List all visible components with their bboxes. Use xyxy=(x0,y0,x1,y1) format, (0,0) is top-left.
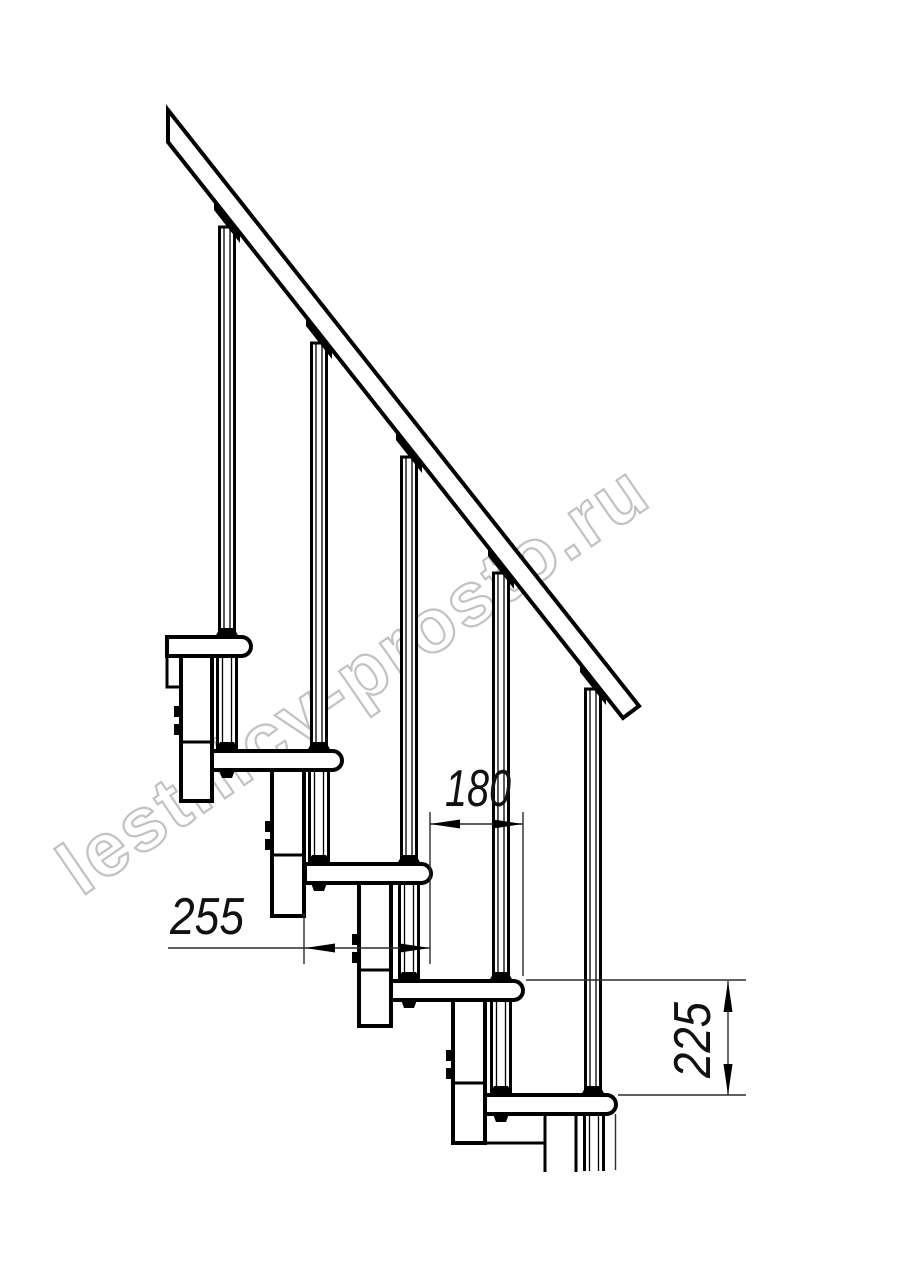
baluster-3 xyxy=(397,457,421,864)
bolt xyxy=(446,1050,454,1061)
nut xyxy=(311,883,327,891)
tread-5 xyxy=(485,1095,616,1114)
tread-4 xyxy=(391,981,523,1000)
sleeve-5 xyxy=(585,1114,604,1171)
arrowhead-left xyxy=(430,820,460,829)
dimension-step-rise: 225 xyxy=(526,980,746,1170)
watermark-text: lestnicy-prosto.ru xyxy=(43,447,665,911)
sleeve-4 xyxy=(492,1000,511,1095)
baluster-5 xyxy=(581,689,605,1095)
baluster-2 xyxy=(307,343,331,751)
tread-3 xyxy=(305,864,431,883)
sleeve-3 xyxy=(400,883,419,981)
arrowhead-left xyxy=(305,944,335,953)
dim-label-225: 225 xyxy=(664,1001,722,1079)
bolt xyxy=(352,934,360,945)
technical-drawing: lestnicy-prosto.ru xyxy=(0,0,914,1280)
arrowhead-up xyxy=(724,981,733,1012)
bolt xyxy=(265,821,273,832)
baluster-1 xyxy=(215,227,239,637)
sleeve-2 xyxy=(310,770,329,864)
bolt xyxy=(352,952,360,963)
module-2 xyxy=(265,770,304,916)
bolt xyxy=(174,706,182,717)
page: lestnicy-prosto.ru xyxy=(0,0,914,1280)
watermark: lestnicy-prosto.ru xyxy=(43,447,665,911)
arrowhead-down xyxy=(724,1064,733,1095)
bolt xyxy=(446,1068,454,1079)
bolt xyxy=(174,724,182,735)
tread-2 xyxy=(212,751,342,770)
nut xyxy=(493,1114,509,1122)
bolt xyxy=(265,839,273,850)
module-5 xyxy=(545,1114,576,1172)
dim-label-255: 255 xyxy=(169,888,245,946)
dim-label-180: 180 xyxy=(445,760,511,818)
nut xyxy=(401,1000,417,1008)
tread-1 xyxy=(167,637,251,656)
module-3 xyxy=(352,883,391,1026)
sleeve-1 xyxy=(218,656,237,751)
